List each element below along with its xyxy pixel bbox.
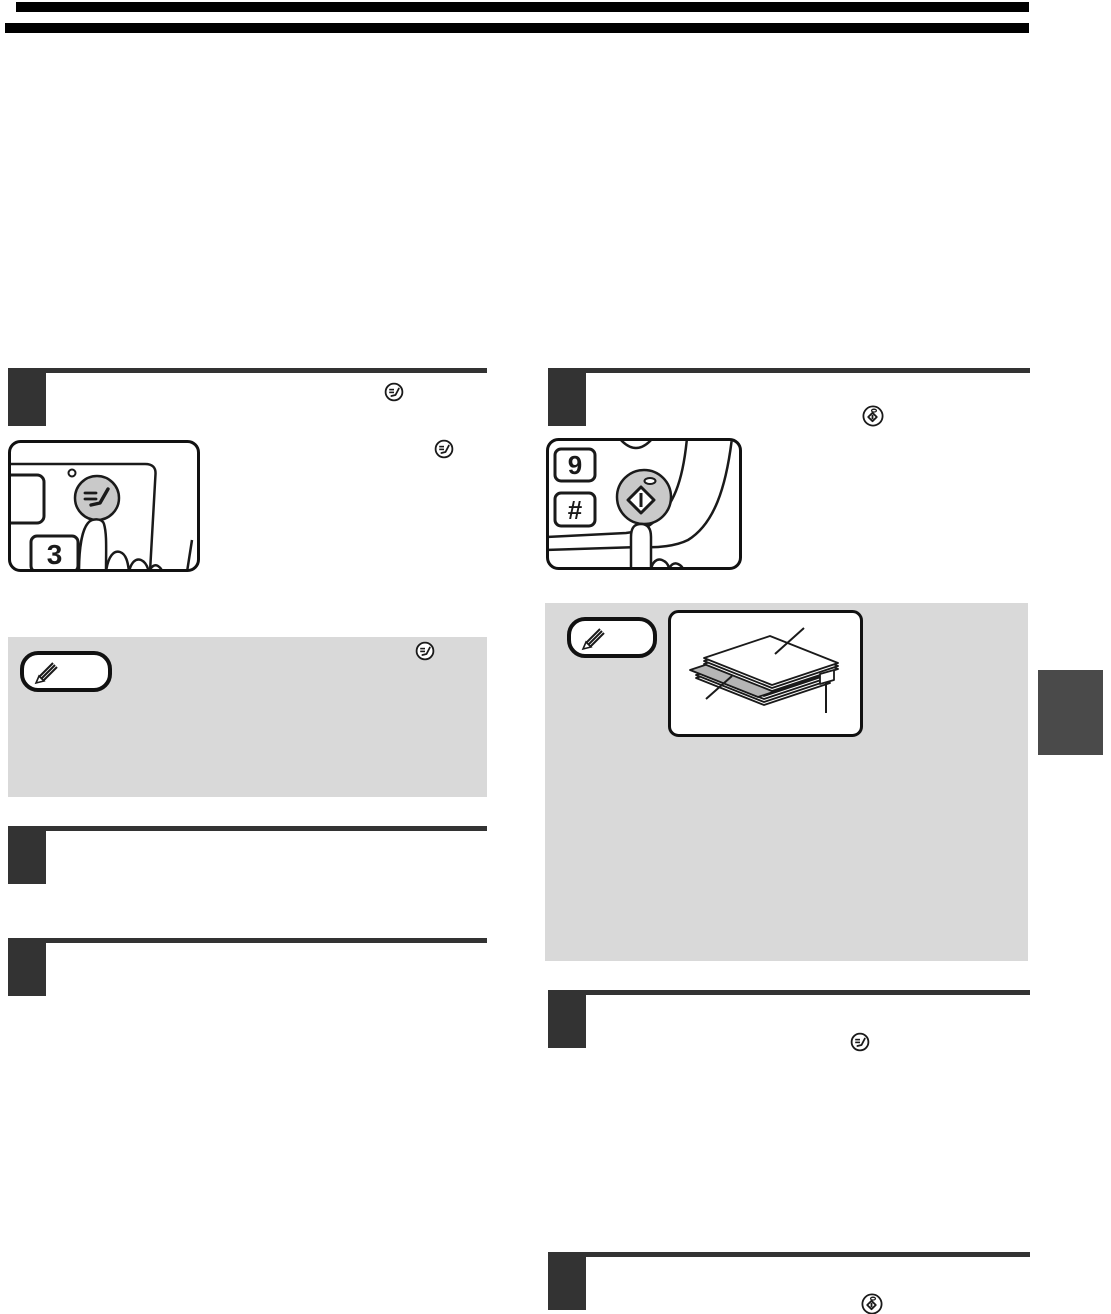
partial-key xyxy=(8,475,44,523)
paper-stack-figure xyxy=(668,610,863,737)
led-indicator xyxy=(69,470,76,477)
pencil-icon xyxy=(577,624,609,652)
account-clear-key-icon xyxy=(434,439,454,459)
step-rule xyxy=(586,1252,1030,1257)
header-rule-bottom xyxy=(5,23,1029,33)
note-badge xyxy=(20,651,112,692)
chapter-side-tab xyxy=(1038,670,1103,755)
step-marker xyxy=(548,368,586,426)
step-marker xyxy=(8,938,46,996)
note-box xyxy=(8,637,487,797)
key-hash-label: # xyxy=(568,495,583,525)
pencil-icon xyxy=(30,658,62,686)
control-panel-illustration-right: 9 # xyxy=(546,438,742,570)
account-clear-button xyxy=(75,476,119,520)
step-rule xyxy=(586,368,1030,373)
pressing-finger xyxy=(631,524,651,570)
step-rule xyxy=(586,990,1030,995)
step-marker xyxy=(8,826,46,884)
step-rule xyxy=(46,368,487,373)
note-badge xyxy=(567,617,657,658)
key-9-label: 9 xyxy=(568,450,582,480)
step-rule xyxy=(46,938,487,943)
account-clear-key-icon xyxy=(850,1032,870,1052)
manual-page: 3 xyxy=(0,0,1111,1314)
step-marker xyxy=(8,368,46,426)
control-panel-illustration-left: 3 xyxy=(8,440,200,572)
step-marker xyxy=(548,990,586,1048)
step-marker xyxy=(548,1252,586,1310)
start-button-led xyxy=(645,478,656,484)
header-rule-top xyxy=(16,2,1029,12)
start-key-icon xyxy=(861,402,885,428)
key-3-label: 3 xyxy=(47,539,63,570)
account-clear-key-icon xyxy=(415,641,435,661)
note-box xyxy=(545,603,1028,961)
account-clear-key-icon xyxy=(384,382,404,402)
step-rule xyxy=(46,826,487,831)
start-key-icon xyxy=(860,1290,884,1314)
